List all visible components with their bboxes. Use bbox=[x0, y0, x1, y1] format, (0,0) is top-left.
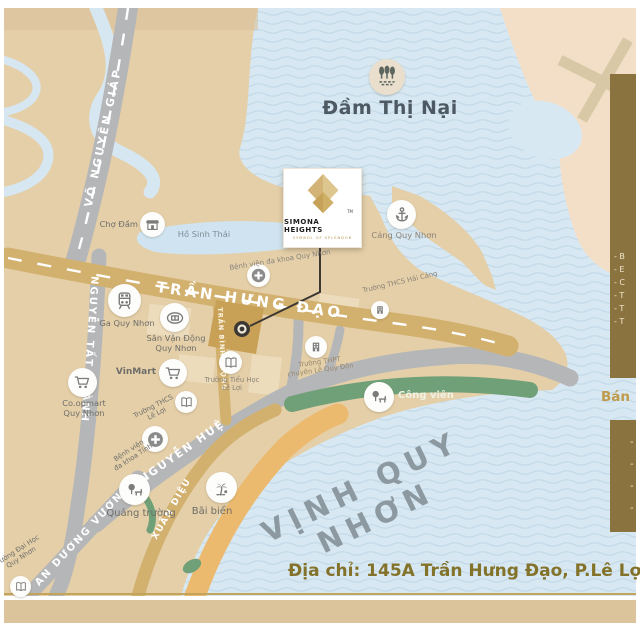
panel-bullet: - bbox=[610, 476, 636, 498]
anchor-port-icon bbox=[387, 200, 416, 229]
cart-icon bbox=[159, 359, 187, 387]
cang-quy-nhon-label: Cảng Quy Nhơn bbox=[362, 231, 446, 241]
project-marker-icon bbox=[234, 321, 250, 337]
park-tree-bench-icon bbox=[364, 382, 394, 412]
train-station-icon bbox=[108, 284, 141, 317]
brand-name: SIMONA HEIGHTS bbox=[284, 218, 361, 234]
panel-bullet: - T bbox=[610, 315, 636, 328]
book-school-icon bbox=[10, 576, 31, 597]
brand-tagline: SYMBOL OF SPLENDOR bbox=[293, 236, 353, 240]
panel-bullet: - bbox=[610, 432, 636, 454]
ho-sinh-thai-label: Hồ Sinh Thái bbox=[158, 230, 250, 240]
address-line: Địa chỉ: 145A Trần Hưng Đạo, P.Lê Lợi, T… bbox=[288, 561, 640, 581]
cong-vien-label: Công viên bbox=[398, 390, 468, 402]
panel-bullet: - bbox=[610, 454, 636, 476]
trademark-symbol: TM bbox=[347, 209, 353, 214]
bai-bien-label: Bãi biển bbox=[176, 506, 248, 518]
san-van-dong-label: Sân Vận Động Quy Nhơn bbox=[130, 334, 222, 354]
panel-bullet: - bbox=[610, 498, 636, 520]
panel-bullet: - B bbox=[610, 250, 636, 263]
panel-bullet: - T bbox=[610, 302, 636, 315]
panel-bullet: - C bbox=[610, 276, 636, 289]
simona-heights-logo-card: TM SIMONA HEIGHTS SYMBOL OF SPLENDOR bbox=[283, 168, 362, 248]
side-panel-top: - B - E - C - T - T - T bbox=[610, 74, 636, 378]
bottom-band bbox=[4, 600, 636, 623]
cho-dam-label: Chợ Đầm bbox=[92, 220, 138, 230]
quang-truong-label: Quảng trường bbox=[102, 508, 180, 520]
cart-icon bbox=[68, 368, 97, 397]
panel-bullet: - T bbox=[610, 289, 636, 302]
building-school-icon bbox=[305, 336, 327, 358]
palm-beach-icon bbox=[206, 472, 237, 503]
vinmart-label: VinMart bbox=[112, 367, 156, 378]
mangrove-icon bbox=[369, 59, 405, 95]
park-tree-bench-icon bbox=[119, 474, 150, 505]
map-bottom-rule bbox=[4, 593, 636, 595]
dam-thi-nai-label: Đầm Thị Nại bbox=[320, 97, 460, 119]
panel-heading-partial: Bán bbox=[601, 389, 640, 406]
book-school-icon bbox=[219, 351, 242, 374]
building-school-icon bbox=[371, 301, 389, 319]
panel-bullet: - E bbox=[610, 263, 636, 276]
ga-quy-nhon-label: Ga Quy Nhơn bbox=[84, 319, 170, 329]
tieu-hoc-le-loi-label: Trường Tiểu Học Lê Lợi bbox=[190, 376, 274, 392]
coopmart-label: Co.opmart Quy Nhơn bbox=[44, 399, 124, 419]
diamond-logo-icon bbox=[298, 173, 348, 217]
map-poster: VỊNH QUY NHƠN VÕ NGUYÊN GIÁP TRẦN HƯNG Đ… bbox=[0, 0, 640, 640]
side-panel-bottom: - - - - bbox=[610, 420, 636, 532]
